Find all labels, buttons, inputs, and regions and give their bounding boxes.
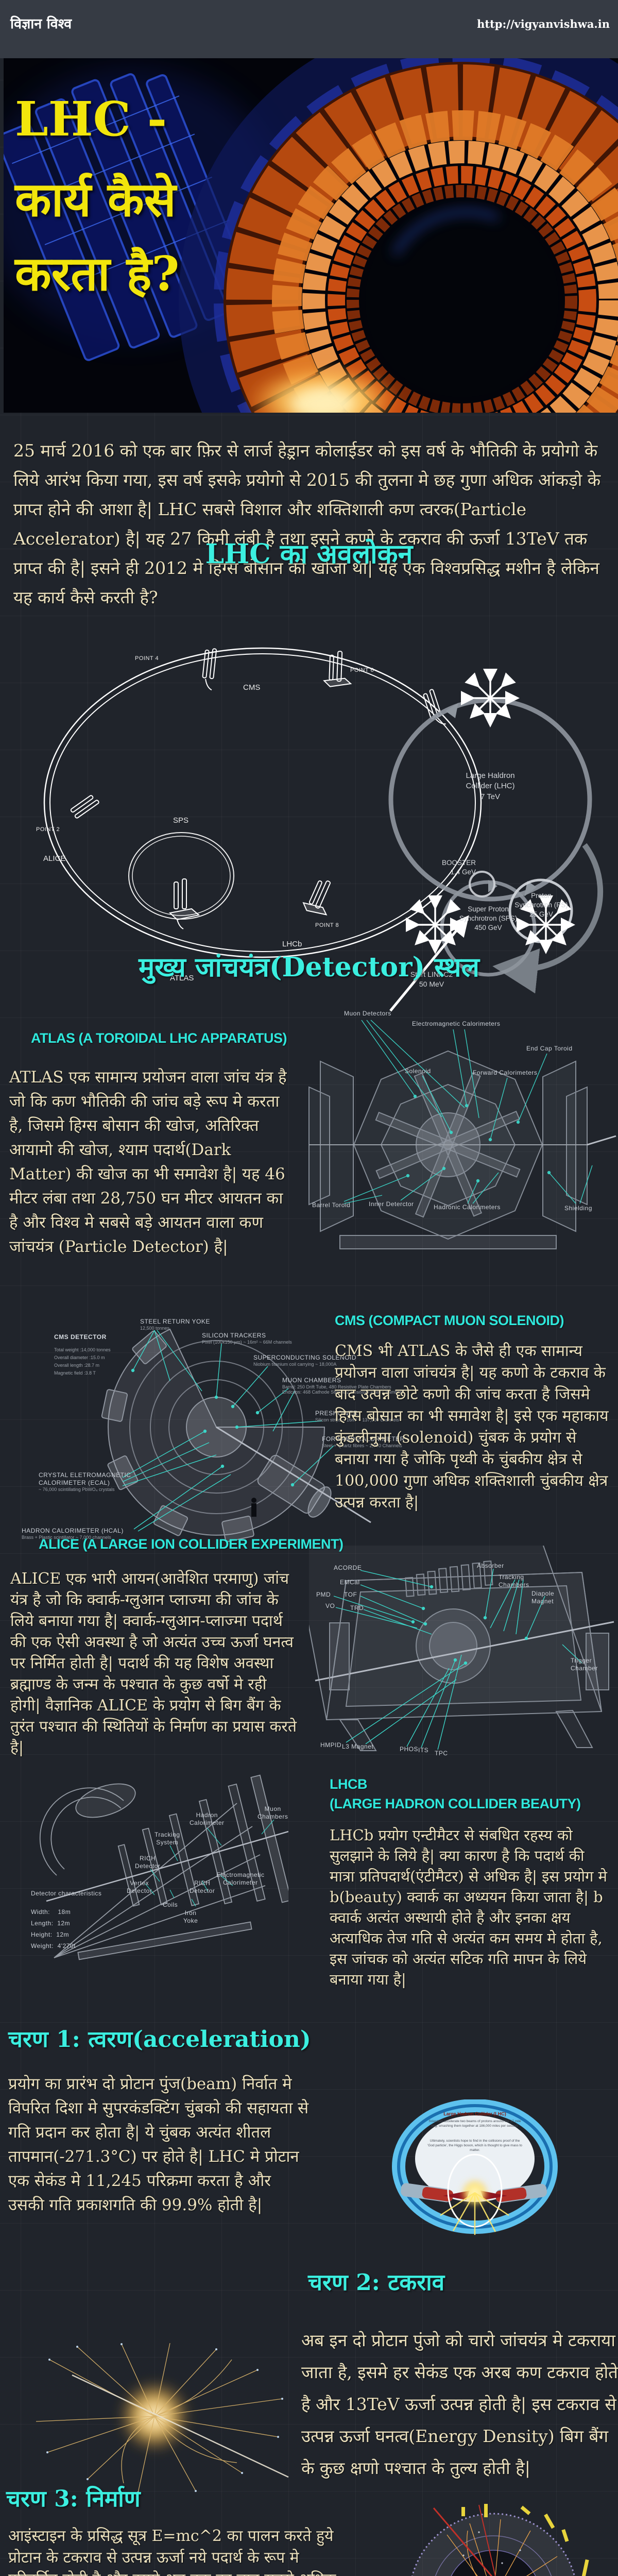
alice-label-trigger-chamber: Trigger Chamber	[571, 1657, 607, 1672]
lhcb-characteristics-length: Length: 12m	[31, 1918, 70, 1929]
cms-heading: CMS (COMPACT MUON SOLENOID)	[335, 1313, 564, 1329]
lhcb-label-coils: Coils	[163, 1901, 178, 1909]
lhcb-characteristics-height: Height: 12m	[31, 1929, 69, 1940]
cms-label-ecal-sub: ~ 76,000 scintillating PbWO₄ crystals	[39, 1487, 131, 1492]
site-url: http://vigyanvishwa.in	[477, 18, 610, 30]
cms-label-steel-return-yoke: STEEL RETURN YOKE	[140, 1318, 210, 1325]
alice-label-tpc: TPC	[435, 1750, 448, 1757]
alice-label-pmd: PMD	[316, 1591, 331, 1599]
lhcb-heading-line1: LHCB	[330, 1776, 367, 1792]
alice-label-tof: TOF	[344, 1591, 357, 1599]
detectors-heading: मुख्य जांचयंत्र(Detector) स्थल	[0, 948, 618, 985]
stage3-paragraph: आइंस्टाइन के प्रसिद्ध सूत्र E=mc^2 का पा…	[8, 2526, 351, 2576]
alice-label-its: ITS	[418, 1747, 428, 1754]
cms-spec-field: Magnetic field :3.8 T	[54, 1370, 96, 1376]
chain-label-lhc: Large Haldron Collider (LHC) 7 TeV	[444, 771, 537, 802]
atlas-label-solenoid: Solenoid	[405, 1067, 431, 1075]
alice-label-tracking-chambers: Tracking Chambers	[499, 1573, 541, 1589]
alice-label-phos: PHOS	[400, 1745, 418, 1753]
infographic-page: विज्ञान विश्व http://vigyanvishwa.in	[0, 0, 618, 2576]
ring-label-cms: CMS	[243, 683, 260, 692]
atlas-label-shielding: Shielding	[564, 1205, 592, 1212]
atlas-label-hadronic-calorimeters: Hadronic Calorimeters	[434, 1204, 501, 1211]
hero-image: LHC - कार्य कैसे करता है?	[4, 58, 618, 413]
cms-paragraph: CMS भी ATLAS के जैसे ही एक सामान्य प्रयो…	[335, 1341, 615, 1514]
cms-label-hcal: HADRON CALORIMETER (HCAL)	[22, 1527, 124, 1534]
cms-spec-diameter: Overall diameter :15.0 m	[54, 1355, 105, 1360]
cms-label-steel-return-yoke-sub: 12,500 tonnes	[140, 1326, 210, 1331]
atlas-label-muon-detectors: Muon Detectors	[344, 1010, 391, 1018]
ring-label-lhcb: LHCb	[282, 940, 302, 948]
hero-title-line-1: LHC -	[15, 95, 167, 143]
stage1-card-text-2: Ultimately, scientists hope to find in t…	[427, 2139, 522, 2153]
lhcb-characteristics-width: Width: 18m	[31, 1906, 71, 1918]
atlas-label-inner-detector: Inner Deterctor	[369, 1200, 414, 1208]
ring-label-point2: POINT 2	[36, 826, 60, 833]
stage2-heading: चरण 2: टकराव	[308, 2266, 444, 2297]
lhcb-label-rich-detector-2: RICH Detector	[190, 1879, 215, 1895]
site-name: विज्ञान विश्व	[10, 13, 72, 32]
stage1-heading: चरण 1: त्वरण(acceleration)	[8, 2023, 311, 2054]
alice-label-diapole-magnet: Diapole Magnet	[531, 1590, 568, 1605]
hero-title-line-3: करता है?	[15, 250, 179, 297]
stage1-paragraph: प्रयोग का प्रारंभ दो प्रोटान पुंज(beam) …	[8, 2072, 310, 2217]
lhcb-label-vertex-detector: Vertex Detector	[127, 1879, 152, 1895]
lhcb-heading-line2: (LARGE HADRON COLLIDER BEAUTY)	[330, 1796, 580, 1812]
lhcb-characteristics-weight: Weight: 4'270t	[31, 1940, 76, 1952]
alice-label-hmpid: HMPID	[320, 1741, 341, 1749]
atlas-paragraph: ATLAS एक सामान्य प्रयोजन वाला जांच यंत्र…	[9, 1065, 291, 1259]
stage3-event-display-image	[397, 2504, 597, 2576]
lhcb-label-em-calorimeter: Electromagnetic Calorimeter	[216, 1871, 265, 1887]
stage1-card-text-1: Scientists accelerate two beams of proto…	[427, 2120, 522, 2129]
stage1-card-title: Large Hadron Collider (LHC)	[423, 2111, 526, 2116]
lhcb-label-iron-yoke: Iron Yoke	[183, 1909, 198, 1925]
alice-heading: ALICE (A LARGE ION COLLIDER EXPERIMENT)	[39, 1536, 344, 1552]
ring-label-point6: POINT 6	[350, 667, 374, 673]
alice-label-acorde: ACORDE	[334, 1564, 362, 1572]
hero-title-line-2: कार्य कैसे	[15, 176, 176, 223]
atlas-label-barrel-toroid: Barrel Toroid	[312, 1201, 350, 1209]
stage2-paragraph: अब इन दो प्रोटान पुंजो को चारो जांचयंत्र…	[301, 2325, 618, 2484]
alice-label-trd: TRD	[350, 1604, 364, 1612]
alice-label-vo: VO	[325, 1602, 335, 1610]
lhcb-paragraph: LHCb प्रयोग एन्टीमैटर से संबधित रहस्य को…	[330, 1825, 614, 1990]
stage2-collision-image	[21, 2342, 299, 2496]
lhcb-label-muon-chambers: Muon Chambers	[257, 1805, 288, 1821]
lhcb-label-rich-detector-1: RICH Detector	[135, 1855, 160, 1870]
chain-label-ps: Proton Synchrotron (PS) 25 GeV	[511, 891, 572, 920]
cms-spec-weight: Total weight :14,000 tonnes	[54, 1347, 111, 1352]
ring-label-point8: POINT 8	[315, 922, 339, 928]
atlas-label-em-calorimeters: Electromagnetic Calorimeters	[412, 1020, 500, 1028]
ring-label-point4: POINT 4	[135, 655, 159, 662]
atlas-label-end-cap-toroid: End Cap Toroid	[526, 1045, 573, 1053]
stage3-heading: चरण 3: निर्माण	[6, 2482, 141, 2513]
alice-label-absorber: Absorber	[477, 1562, 504, 1570]
ring-label-sps: SPS	[173, 816, 188, 825]
cms-spec-length: Overall length :28.7 m	[54, 1363, 99, 1368]
cms-diagram-title: CMS DETECTOR	[54, 1333, 107, 1341]
alice-label-emcal: EMCal	[340, 1579, 360, 1586]
cms-label-muon-chambers: MUON CHAMBERS	[282, 1377, 341, 1384]
lhc-overview-diagram	[0, 582, 618, 1072]
cms-label-ecal: CRYSTAL ELETROMAGNETIC CALORIMETER (ECAL…	[39, 1471, 131, 1486]
alice-paragraph: ALICE एक भारी आयन(आवेशित परमाणु) जांच यं…	[10, 1568, 299, 1758]
lhcb-label-tracking-system: Tracking System	[154, 1831, 180, 1846]
overview-heading: LHC का अवलोकन	[0, 535, 618, 571]
cms-label-silicon-trackers-sub: Pixel (100x150 µm) ~ 16m² ~ 66M channels	[202, 1340, 292, 1345]
lhcb-label-hadron-calorimeter: Hadron Calorimeter	[190, 1811, 225, 1827]
atlas-label-forward-calorimeters: Forward Calorimeters	[473, 1069, 537, 1077]
lhcb-characteristics-title: Detector characteristics	[31, 1890, 101, 1897]
cms-label-silicon-trackers: SILICON TRACKERS	[202, 1332, 266, 1339]
ring-label-alice: ALICE	[43, 854, 65, 863]
atlas-heading: ATLAS (A TOROIDAL LHC APPARATUS)	[31, 1030, 287, 1046]
alice-label-l3-magnet: L3 Magnet	[342, 1743, 373, 1751]
chain-label-booster: BOOSTER 1.4 GeV	[418, 858, 476, 877]
